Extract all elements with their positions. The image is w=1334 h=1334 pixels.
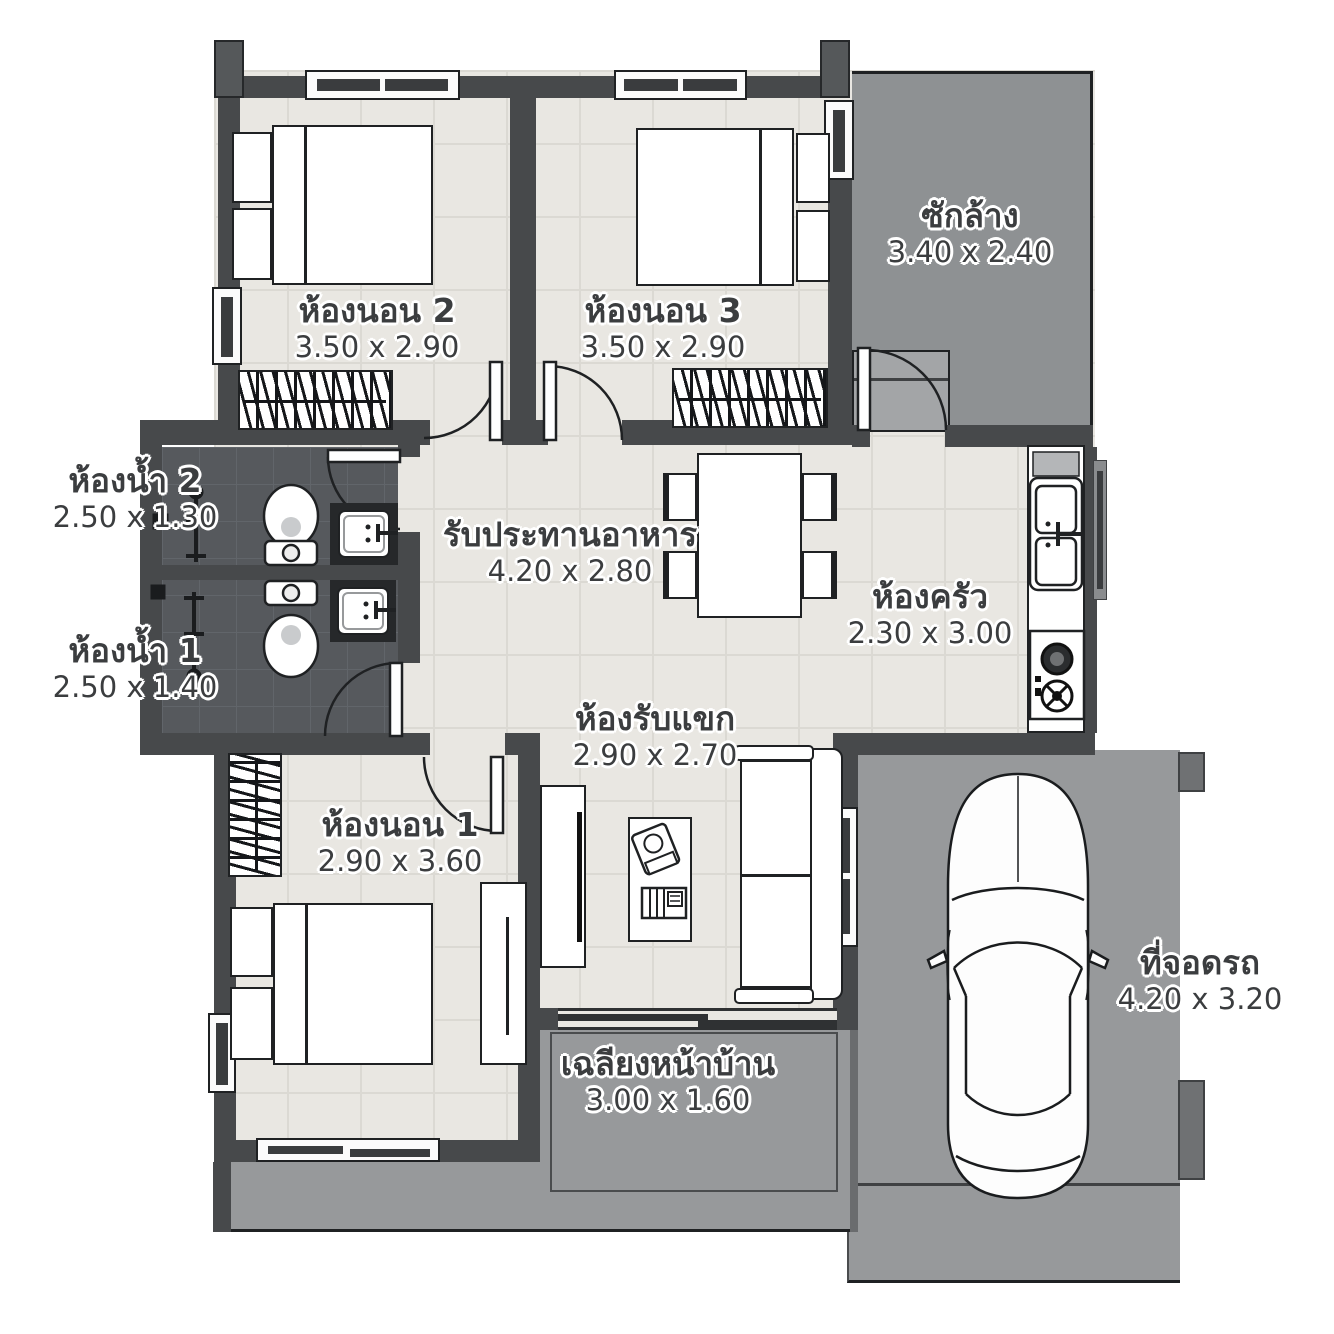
kitchen-sink — [1030, 452, 1085, 590]
room-label-bedroom3: ห้องนอน 3 3.50 x 2.90 — [513, 292, 813, 364]
door-bedroom3 — [544, 362, 622, 440]
toilet-bathroom1 — [264, 581, 318, 677]
room-label-kitchen: ห้องครัว 2.30 x 3.00 — [780, 578, 1080, 650]
room-name: ซักล้าง — [820, 197, 1120, 236]
room-dim: 4.20 x 3.20 — [1050, 983, 1334, 1016]
room-label-bathroom1: ห้องน้ำ 1 2.50 x 1.40 — [5, 632, 265, 704]
room-label-bathroom2: ห้องน้ำ 2 2.50 x 1.30 — [5, 462, 265, 534]
room-name: ห้องนอน 1 — [250, 806, 550, 845]
door-bathroom1 — [325, 663, 402, 736]
room-dim: 2.90 x 2.70 — [505, 739, 805, 772]
room-name: ห้องน้ำ 1 — [5, 632, 265, 671]
room-label-dining: รับประทานอาหาร 4.20 x 2.80 — [400, 516, 740, 588]
room-dim: 2.50 x 1.30 — [5, 501, 265, 534]
room-dim: 2.50 x 1.40 — [5, 671, 265, 704]
room-name: ที่จอดรถ — [1050, 944, 1334, 983]
room-dim: 3.50 x 2.90 — [513, 331, 813, 364]
toilet-bathroom2 — [264, 485, 318, 565]
room-name: ห้องรับแขก — [505, 700, 805, 739]
room-dim: 4.20 x 2.80 — [400, 555, 740, 588]
room-dim: 3.50 x 2.90 — [227, 331, 527, 364]
sink-vanity-bathroom2 — [330, 503, 398, 565]
room-name: รับประทานอาหาร — [400, 516, 740, 555]
room-dim: 2.90 x 3.60 — [250, 845, 550, 878]
coffee-table-items — [631, 823, 686, 918]
room-name: ห้องน้ำ 2 — [5, 462, 265, 501]
room-name: เฉลียงหน้าบ้าน — [508, 1045, 828, 1084]
room-label-carport: ที่จอดรถ 4.20 x 3.20 — [1050, 944, 1334, 1016]
room-dim: 2.30 x 3.00 — [780, 617, 1080, 650]
room-label-bedroom1: ห้องนอน 1 2.90 x 3.60 — [250, 806, 550, 878]
room-label-bedroom2: ห้องนอน 2 3.50 x 2.90 — [227, 292, 527, 364]
room-name: ห้องนอน 3 — [513, 292, 813, 331]
room-label-living: ห้องรับแขก 2.90 x 2.70 — [505, 700, 805, 772]
floor-plan: ห้องนอน 2 3.50 x 2.90 ห้องนอน 3 3.50 x 2… — [0, 0, 1334, 1334]
door-laundry — [858, 348, 946, 430]
room-label-porch: เฉลียงหน้าบ้าน 3.00 x 1.60 — [508, 1045, 828, 1117]
door-bedroom2 — [424, 362, 502, 440]
room-name: ห้องครัว — [780, 578, 1080, 617]
room-name: ห้องนอน 2 — [227, 292, 527, 331]
room-label-laundry: ซักล้าง 3.40 x 2.40 — [820, 197, 1120, 269]
room-dim: 3.00 x 1.60 — [508, 1084, 828, 1117]
room-dim: 3.40 x 2.40 — [820, 236, 1120, 269]
sink-vanity-bathroom1 — [330, 580, 396, 642]
